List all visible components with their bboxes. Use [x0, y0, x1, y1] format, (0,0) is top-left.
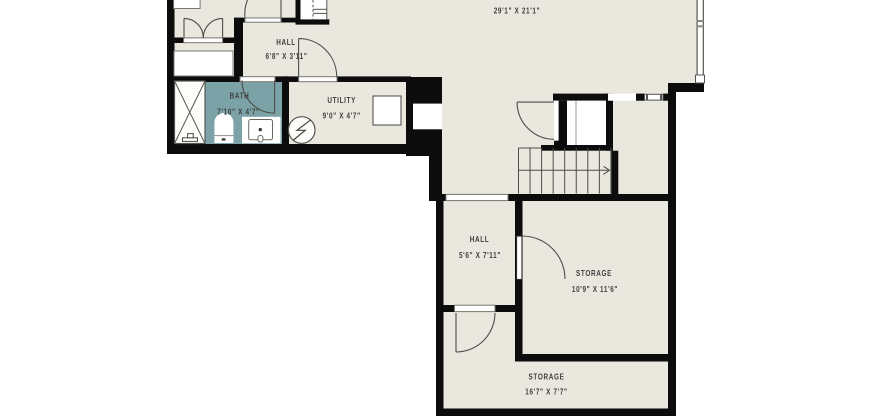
- svg-text:UTILITY: UTILITY: [327, 95, 356, 105]
- svg-text:16'7" X 7'7": 16'7" X 7'7": [525, 387, 567, 397]
- svg-text:HALL: HALL: [470, 234, 490, 244]
- svg-text:STORAGE: STORAGE: [529, 372, 565, 382]
- svg-text:9'0" X 4'7": 9'0" X 4'7": [323, 111, 361, 121]
- svg-text:6'8" X 3'11": 6'8" X 3'11": [265, 51, 307, 61]
- svg-text:29'1" X 21'1": 29'1" X 21'1": [494, 6, 541, 16]
- svg-text:HALL: HALL: [276, 37, 296, 47]
- svg-text:5'6" X 7'11": 5'6" X 7'11": [459, 250, 501, 260]
- svg-text:BATH: BATH: [230, 91, 250, 101]
- svg-text:STORAGE: STORAGE: [576, 268, 612, 278]
- svg-text:7'10" X 4'7": 7'10" X 4'7": [217, 107, 259, 117]
- svg-text:10'9" X 11'6": 10'9" X 11'6": [572, 284, 618, 294]
